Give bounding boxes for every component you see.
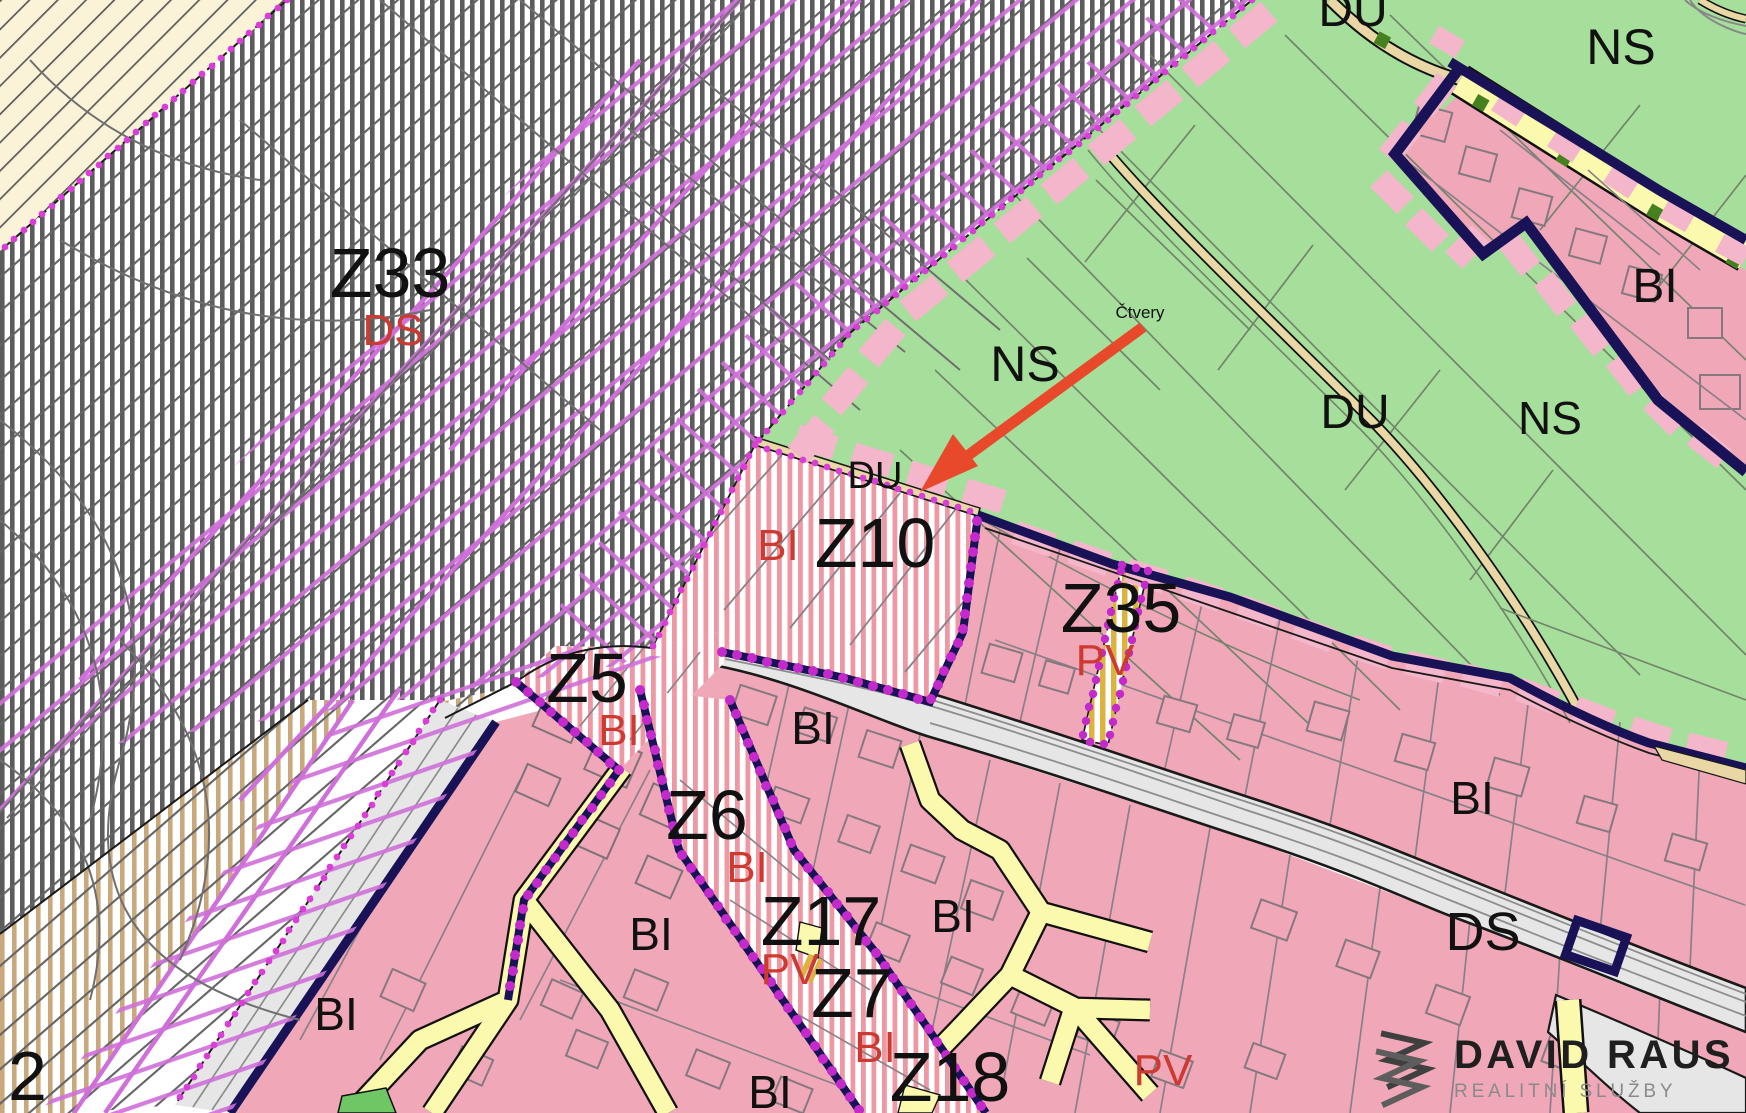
- svg-text:BI: BI: [757, 521, 799, 570]
- svg-text:BI: BI: [931, 890, 974, 942]
- svg-text:DU: DU: [848, 455, 903, 497]
- svg-text:DU: DU: [1320, 386, 1389, 439]
- svg-text:BI: BI: [629, 908, 672, 960]
- svg-text:DS: DS: [1445, 902, 1520, 962]
- svg-text:DAVID RAUS: DAVID RAUS: [1454, 1033, 1734, 1077]
- svg-text:Z10: Z10: [815, 504, 936, 582]
- svg-text:Čtvery: Čtvery: [1115, 303, 1165, 322]
- svg-text:PV: PV: [1134, 1046, 1193, 1095]
- svg-text:2: 2: [8, 1037, 47, 1113]
- svg-text:NS: NS: [1586, 19, 1655, 75]
- svg-text:REALITNÍ SLUŽBY: REALITNÍ SLUŽBY: [1454, 1080, 1676, 1102]
- svg-text:BI: BI: [854, 1023, 896, 1072]
- svg-text:Z7: Z7: [811, 954, 893, 1032]
- svg-text:BI: BI: [791, 702, 834, 754]
- svg-text:Z33: Z33: [330, 234, 451, 312]
- svg-text:NS: NS: [990, 336, 1059, 392]
- svg-text:BI: BI: [748, 1066, 791, 1113]
- svg-text:PV: PV: [1076, 636, 1135, 685]
- svg-text:DS: DS: [362, 306, 423, 355]
- svg-text:BI: BI: [314, 988, 357, 1040]
- svg-text:NS: NS: [1518, 392, 1582, 444]
- svg-text:PV: PV: [761, 945, 820, 994]
- svg-text:BI: BI: [1450, 772, 1493, 824]
- svg-text:BI: BI: [1632, 260, 1677, 313]
- svg-text:BI: BI: [726, 843, 768, 892]
- svg-text:Z18: Z18: [890, 1038, 1011, 1113]
- svg-text:BI: BI: [598, 706, 640, 755]
- svg-text:DU: DU: [1318, 0, 1387, 37]
